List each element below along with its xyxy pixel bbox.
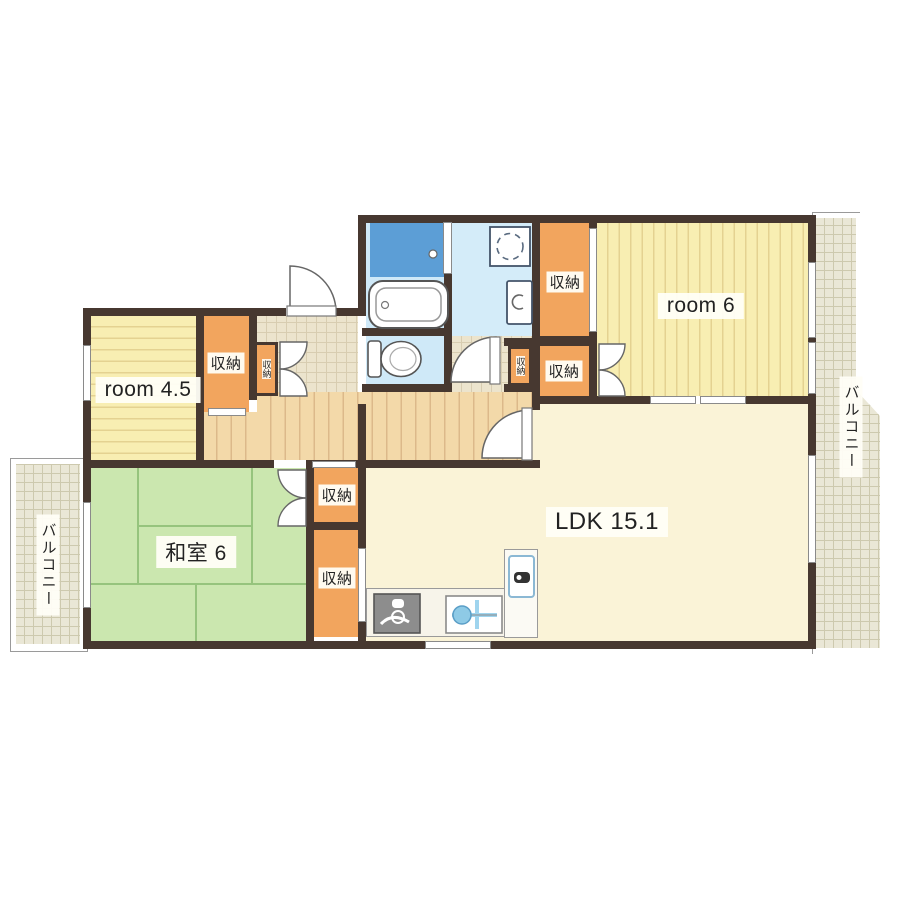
- storage-label: 収納: [207, 353, 244, 374]
- ldk-door: [482, 408, 532, 460]
- storage-label: 収納: [545, 361, 582, 382]
- hall-storage-doors: [280, 342, 307, 396]
- bathtub: [369, 281, 448, 328]
- washitsu-label: 和室 6: [156, 536, 236, 568]
- room-6-label: room 6: [658, 293, 744, 319]
- toilet: [368, 341, 421, 377]
- entrance-door: [287, 266, 336, 316]
- room6-doors: [599, 344, 625, 396]
- kitchen-sink: [446, 596, 502, 633]
- washitsu-doors: [278, 470, 306, 526]
- refrigerator-icon: [509, 556, 534, 597]
- washroom-door: [451, 337, 500, 384]
- washbasin: [507, 281, 532, 324]
- balcony-left-label: バルコニー: [37, 515, 60, 616]
- storage-label: 収納: [546, 272, 583, 293]
- storage-label: 収納: [318, 485, 355, 506]
- ldk-label: LDK 15.1: [546, 507, 668, 537]
- washing-machine: [490, 227, 530, 266]
- shower-dot: [429, 250, 437, 258]
- room-45-label: room 4.5: [96, 377, 201, 403]
- gas-stove: [374, 594, 420, 633]
- storage-label: 収納: [318, 568, 355, 589]
- floor-plan: 収納 収納: [0, 0, 900, 900]
- balcony-right-label: バルコニー: [840, 377, 863, 478]
- fixtures-and-doors: [0, 0, 900, 900]
